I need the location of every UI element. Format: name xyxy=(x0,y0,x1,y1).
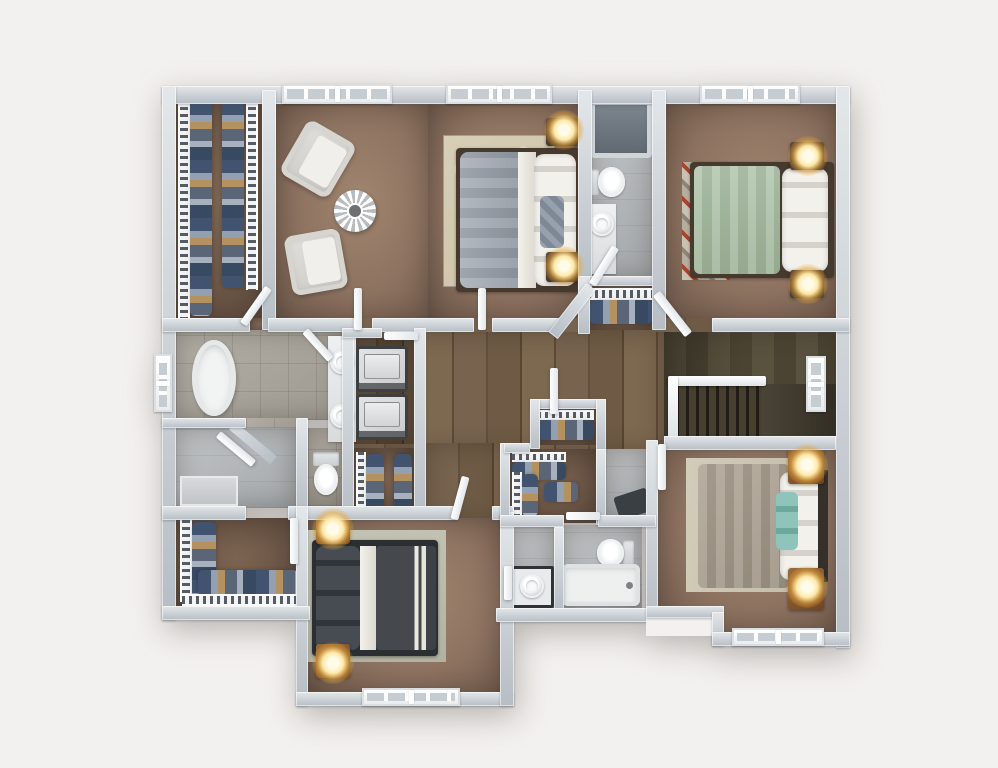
wall-closet5-bottom xyxy=(162,606,310,620)
wall-wc-left xyxy=(296,418,308,512)
window-sitting xyxy=(282,84,392,104)
wall-bath-shower-div xyxy=(162,418,246,428)
bed3-pillows xyxy=(782,168,828,272)
stair-railing xyxy=(668,376,766,386)
bed5-teal-pillows xyxy=(776,492,798,550)
washer xyxy=(356,346,408,392)
wall-hall-top-1 xyxy=(162,318,250,332)
wall-bedroom4-left xyxy=(646,440,658,620)
wall-closet4-top xyxy=(504,443,530,453)
toilet-top xyxy=(588,166,626,198)
wall-nub-right xyxy=(596,399,606,451)
wall-laundry-left xyxy=(342,328,354,520)
window-bedroom3 xyxy=(700,84,800,104)
bathtub-top xyxy=(590,100,652,158)
window-bedroom4 xyxy=(732,628,824,646)
bed2-duvet xyxy=(460,152,520,288)
closet5-rail-left xyxy=(180,520,192,602)
gap-shower-pass xyxy=(246,418,296,428)
stair-railing-post xyxy=(668,376,678,438)
freestanding-tub xyxy=(192,340,236,416)
wall-nub-top xyxy=(530,399,606,409)
bed4-sheet xyxy=(360,546,376,650)
bed4-duvet xyxy=(376,546,436,650)
bed5-headboard xyxy=(818,470,828,582)
linen-rail-left xyxy=(356,452,366,510)
lamp-glow-b5-b xyxy=(786,566,828,608)
closet1-rail-left xyxy=(178,100,190,318)
closet4-nub-rail xyxy=(538,410,594,420)
wall-band-suite-2 xyxy=(288,506,458,520)
door-bedroom4 xyxy=(658,444,666,490)
lamp-glow-b5-a xyxy=(786,444,828,486)
closet4-nub-clothes xyxy=(538,420,594,440)
closet2-clothes xyxy=(590,300,652,324)
lamp-glow-b3-a xyxy=(788,136,828,176)
window-stairwell xyxy=(806,356,826,412)
wall-closet4-left xyxy=(500,443,510,525)
lamp-glow-b2-b xyxy=(544,246,584,286)
wall-bath3-div xyxy=(554,527,564,611)
armchair-2 xyxy=(283,228,349,297)
closet1-clothes-right xyxy=(222,102,244,288)
door-bedroom2 xyxy=(478,288,486,330)
wall-bath3-top-1 xyxy=(500,515,564,527)
lamp-glow-b4-b xyxy=(312,642,354,684)
closet1-clothes-left xyxy=(190,102,212,316)
closet4-clothes-corner xyxy=(544,482,578,502)
sink-top xyxy=(590,212,614,236)
lamp-glow-b2-a xyxy=(544,110,584,150)
door-hall-suite xyxy=(550,368,558,414)
wall-left xyxy=(162,86,176,620)
stairs-treads xyxy=(676,384,762,436)
bed2-accent-pillow xyxy=(540,196,564,248)
door-closet5 xyxy=(290,518,298,564)
toilet-wc xyxy=(310,452,342,496)
bed4-pillows xyxy=(316,546,360,650)
wall-nub-left xyxy=(530,399,540,449)
wall-band-suite-1 xyxy=(162,506,246,520)
window-bedroom2 xyxy=(446,84,552,104)
wall-bath3-top-2 xyxy=(598,515,656,527)
closet2-rail xyxy=(588,288,652,300)
sink-bath3 xyxy=(520,574,544,598)
bed3-duvet xyxy=(694,166,780,274)
linen-clothes-right xyxy=(394,454,412,508)
door-laundry xyxy=(384,332,418,340)
closet4-rail-top xyxy=(512,452,566,462)
wall-laundry-top xyxy=(342,328,382,338)
floor-plan xyxy=(0,0,998,768)
closet5-rail-bottom xyxy=(182,594,298,606)
lamp-glow-b4-a xyxy=(312,508,354,550)
closet4-clothes-side xyxy=(522,474,538,516)
shower-bench xyxy=(180,476,238,506)
bathtub-bath3 xyxy=(562,564,640,606)
notch-bgpatch xyxy=(646,618,712,636)
wall-bath3-bottom xyxy=(496,608,652,622)
closet5-clothes-bottom xyxy=(198,570,298,596)
window-master-bedroom xyxy=(362,688,460,706)
side-table-round xyxy=(334,190,376,232)
linen-clothes-left xyxy=(366,454,384,508)
door-sitting xyxy=(354,288,362,330)
dryer xyxy=(356,394,408,440)
window-master-bath xyxy=(154,354,172,412)
wall-bed3-bottom xyxy=(712,318,850,332)
lamp-glow-b3-b xyxy=(788,264,828,304)
wall-right xyxy=(836,86,850,648)
door-bath3 xyxy=(566,512,600,520)
closet1-rail-right xyxy=(246,100,258,290)
wall-laundry-right xyxy=(414,328,426,518)
door-bath3-vanity xyxy=(504,566,512,600)
